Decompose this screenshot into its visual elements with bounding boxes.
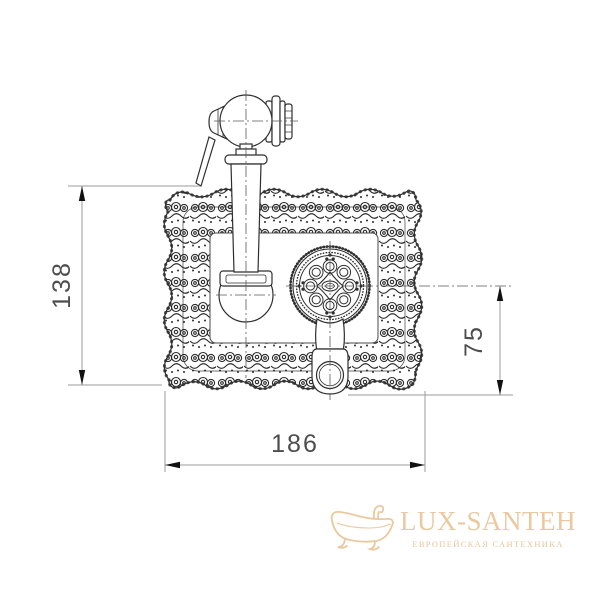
- arrow-up: [497, 286, 503, 301]
- brand-watermark: LUX-SANTEH ЕВРОПЕЙСКАЯ САНТЕХНИКА: [328, 496, 590, 560]
- arrow-up: [79, 186, 85, 201]
- dim-offset-label: 75: [460, 325, 488, 357]
- product-dimension-image: 138 75 186 LUX-SANTEH ЕВРОПЕЙСКАЯ САНТЕХ…: [0, 0, 600, 600]
- hand-shower-ring-3: [280, 101, 285, 142]
- dim-height-label: 138: [48, 261, 76, 309]
- arrow-right: [410, 462, 425, 468]
- arrow-down: [497, 380, 503, 395]
- hand-shower-cap: [285, 104, 292, 139]
- hand-shower-head: [220, 95, 272, 147]
- dim-width: 186: [165, 391, 425, 472]
- hand-shower-lever: [196, 137, 215, 186]
- brand-name: LUX-SANTEH: [400, 507, 576, 535]
- brand-tagline: ЕВРОПЕЙСКАЯ САНТЕХНИКА: [412, 539, 563, 549]
- arrow-left: [165, 462, 180, 468]
- arrow-down: [79, 370, 85, 385]
- dim-width-label: 186: [271, 430, 319, 458]
- bathtub-icon: [328, 499, 396, 557]
